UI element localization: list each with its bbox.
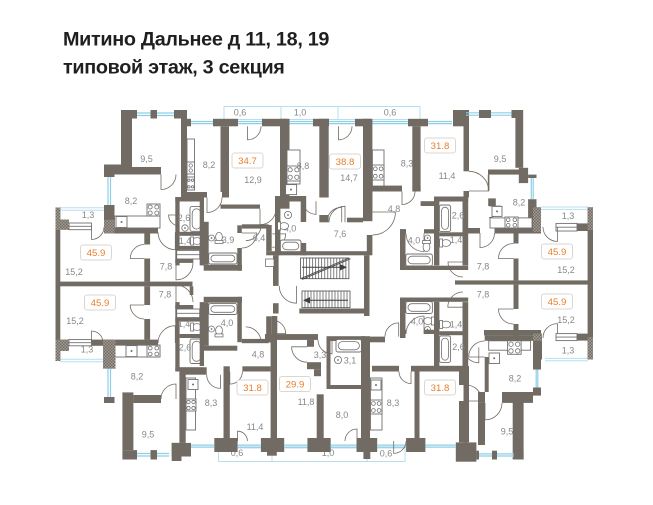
svg-text:0,6: 0,6 xyxy=(380,449,393,459)
svg-text:4,0: 4,0 xyxy=(411,317,424,327)
svg-text:1,3: 1,3 xyxy=(82,210,95,220)
svg-text:4,8: 4,8 xyxy=(252,350,265,360)
svg-text:1,3: 1,3 xyxy=(562,346,575,356)
svg-text:14,7: 14,7 xyxy=(340,173,358,183)
svg-text:15,2: 15,2 xyxy=(65,267,83,277)
svg-text:4,0: 4,0 xyxy=(408,236,421,246)
svg-text:45.9: 45.9 xyxy=(91,298,110,309)
svg-text:31.8: 31.8 xyxy=(431,141,450,152)
svg-text:Митино Дальнее д 11, 18, 19: Митино Дальнее д 11, 18, 19 xyxy=(63,29,329,51)
svg-text:8,2: 8,2 xyxy=(509,374,522,384)
svg-text:15,2: 15,2 xyxy=(557,315,575,325)
svg-text:0,6: 0,6 xyxy=(384,108,397,118)
svg-text:9,5: 9,5 xyxy=(501,427,514,437)
svg-text:8,2: 8,2 xyxy=(125,196,138,206)
svg-text:типовой этаж, 3 секция: типовой этаж, 3 секция xyxy=(63,57,285,79)
svg-text:15,2: 15,2 xyxy=(557,265,575,275)
svg-text:3,3: 3,3 xyxy=(314,350,327,360)
svg-text:3,9: 3,9 xyxy=(222,235,235,245)
svg-text:8,3: 8,3 xyxy=(387,398,400,408)
svg-text:45.9: 45.9 xyxy=(87,248,106,259)
svg-text:29.9: 29.9 xyxy=(286,380,305,391)
svg-text:12,9: 12,9 xyxy=(244,175,262,185)
svg-text:3,1: 3,1 xyxy=(344,356,357,366)
svg-text:11,4: 11,4 xyxy=(439,171,456,181)
svg-text:1,4: 1,4 xyxy=(450,320,463,330)
svg-text:11,8: 11,8 xyxy=(298,397,315,407)
svg-text:45.9: 45.9 xyxy=(548,297,567,308)
svg-text:15,2: 15,2 xyxy=(66,316,84,326)
svg-text:2,6: 2,6 xyxy=(179,343,192,353)
svg-text:9,5: 9,5 xyxy=(140,154,153,164)
svg-text:8,3: 8,3 xyxy=(205,398,218,408)
svg-text:4,8: 4,8 xyxy=(388,204,401,214)
svg-text:0,6: 0,6 xyxy=(234,108,247,118)
svg-text:4,0: 4,0 xyxy=(221,318,234,328)
svg-text:9,5: 9,5 xyxy=(142,430,155,440)
svg-text:7,8: 7,8 xyxy=(477,262,490,272)
svg-text:8,3: 8,3 xyxy=(401,159,414,169)
svg-text:2,6: 2,6 xyxy=(452,211,465,221)
svg-text:1,4: 1,4 xyxy=(178,319,191,329)
svg-text:31.8: 31.8 xyxy=(431,383,450,394)
svg-text:1,0: 1,0 xyxy=(294,108,307,118)
svg-text:7,8: 7,8 xyxy=(477,290,490,300)
svg-text:38.8: 38.8 xyxy=(336,157,355,168)
svg-text:8,2: 8,2 xyxy=(513,198,526,208)
svg-text:45.9: 45.9 xyxy=(548,247,567,258)
svg-text:8,8: 8,8 xyxy=(297,161,310,171)
svg-text:1,4: 1,4 xyxy=(179,236,192,246)
svg-text:34.7: 34.7 xyxy=(238,156,257,167)
svg-text:9,5: 9,5 xyxy=(494,154,507,164)
svg-text:31.8: 31.8 xyxy=(243,383,262,394)
svg-text:6,4: 6,4 xyxy=(253,233,266,243)
svg-text:7,6: 7,6 xyxy=(334,229,347,239)
svg-text:8,2: 8,2 xyxy=(203,160,216,170)
svg-text:11,4: 11,4 xyxy=(247,422,264,432)
svg-text:7,8: 7,8 xyxy=(159,290,172,300)
svg-text:7,8: 7,8 xyxy=(160,262,173,272)
svg-text:2,6: 2,6 xyxy=(452,342,465,352)
svg-text:8,0: 8,0 xyxy=(336,410,349,420)
svg-text:2,6: 2,6 xyxy=(178,213,191,223)
svg-text:1,3: 1,3 xyxy=(562,211,575,221)
svg-text:1,4: 1,4 xyxy=(450,235,463,245)
svg-text:8,2: 8,2 xyxy=(131,372,144,382)
